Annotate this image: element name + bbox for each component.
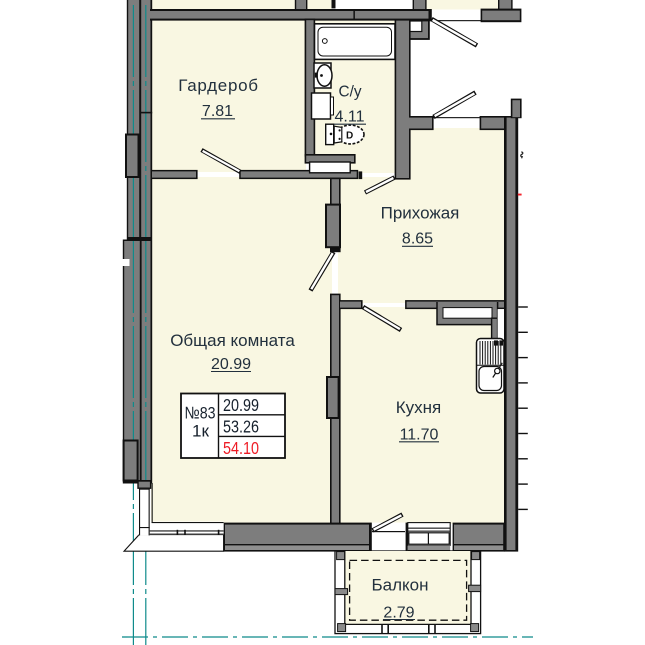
svg-text:4.11: 4.11	[335, 109, 365, 126]
svg-text:Прихожая: Прихожая	[381, 204, 460, 223]
svg-text:20.99: 20.99	[223, 395, 259, 415]
svg-text:Балкон: Балкон	[371, 576, 428, 595]
svg-text:54.10: 54.10	[223, 438, 259, 458]
svg-text:11.70: 11.70	[400, 427, 439, 444]
svg-text:Кухня: Кухня	[396, 398, 442, 417]
svg-text:D: D	[346, 130, 353, 141]
svg-text:Общая комната: Общая комната	[170, 331, 295, 350]
svg-text:С/у: С/у	[339, 84, 362, 101]
svg-text:53.26: 53.26	[223, 417, 259, 437]
svg-text:1к: 1к	[192, 422, 210, 441]
svg-text:Гардероб: Гардероб	[178, 76, 258, 95]
svg-text:7.81: 7.81	[202, 103, 233, 120]
svg-text:8.65: 8.65	[402, 231, 433, 248]
svg-text:№83: №83	[185, 404, 216, 423]
svg-text:20.99: 20.99	[211, 356, 251, 373]
